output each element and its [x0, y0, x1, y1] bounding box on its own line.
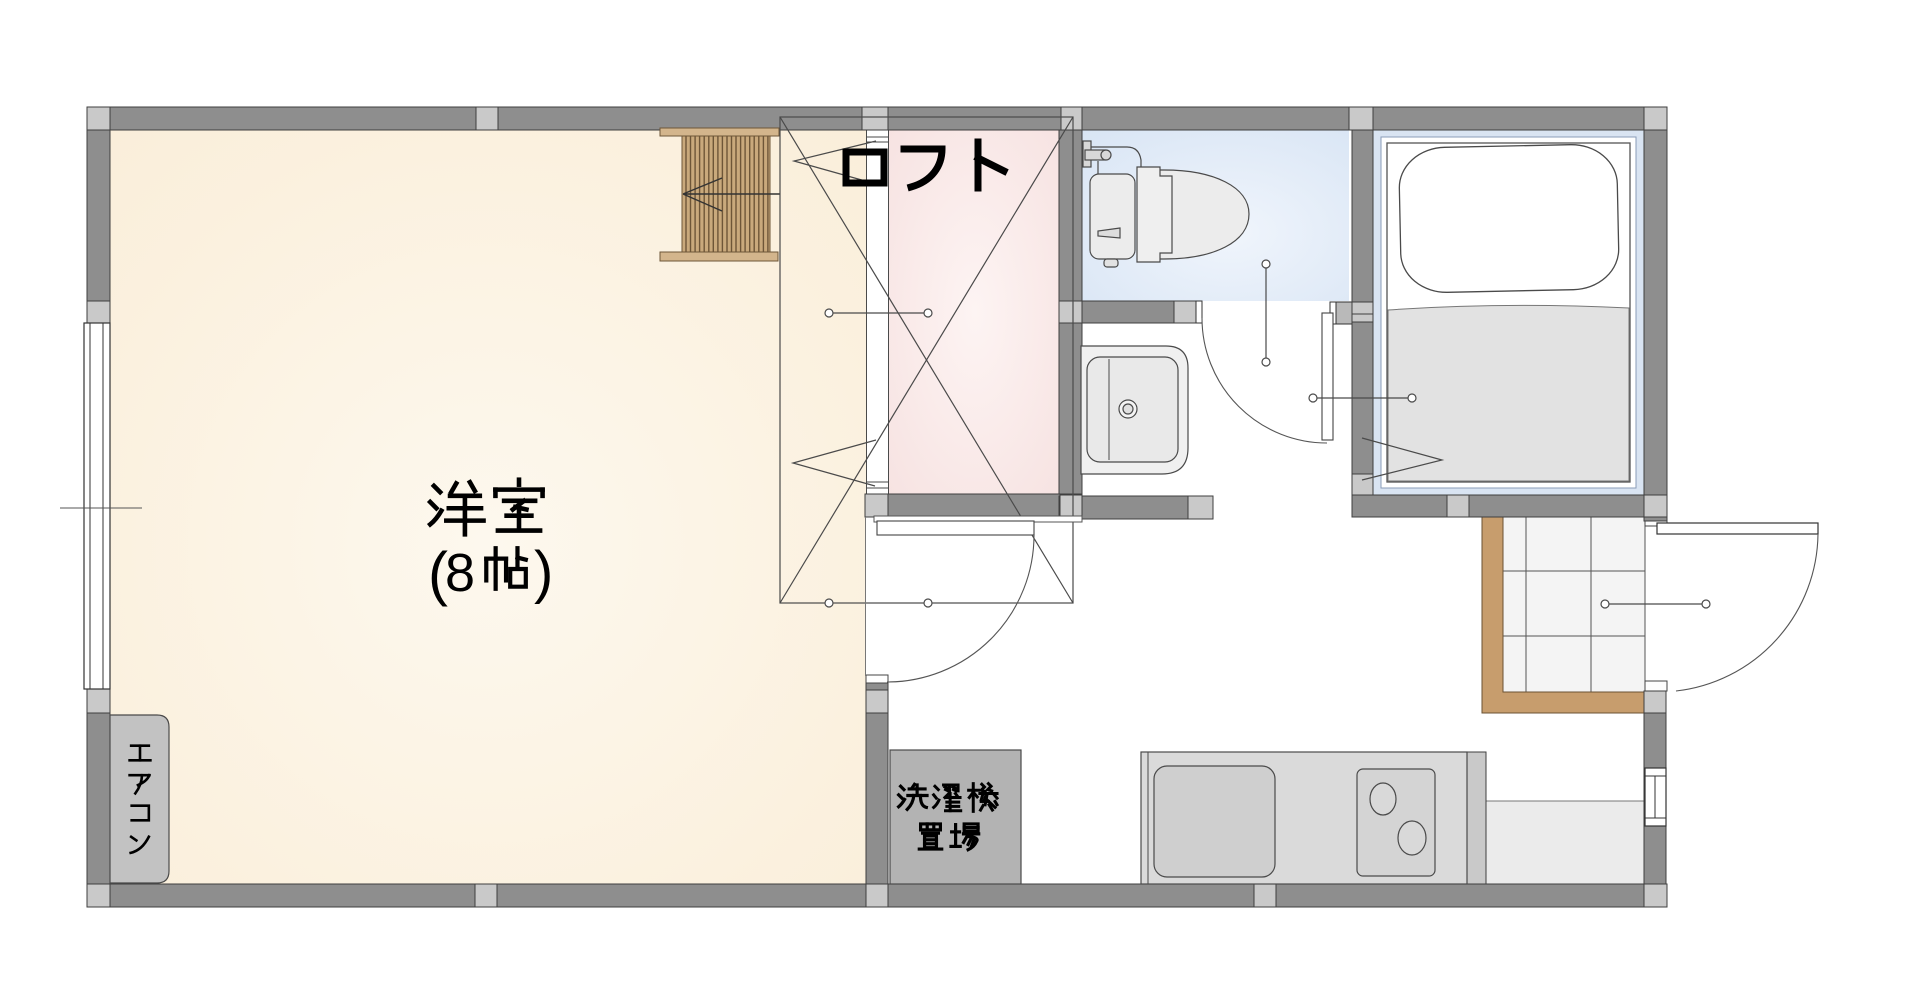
svg-text:): ) — [534, 540, 553, 605]
svg-text:8: 8 — [445, 543, 475, 603]
